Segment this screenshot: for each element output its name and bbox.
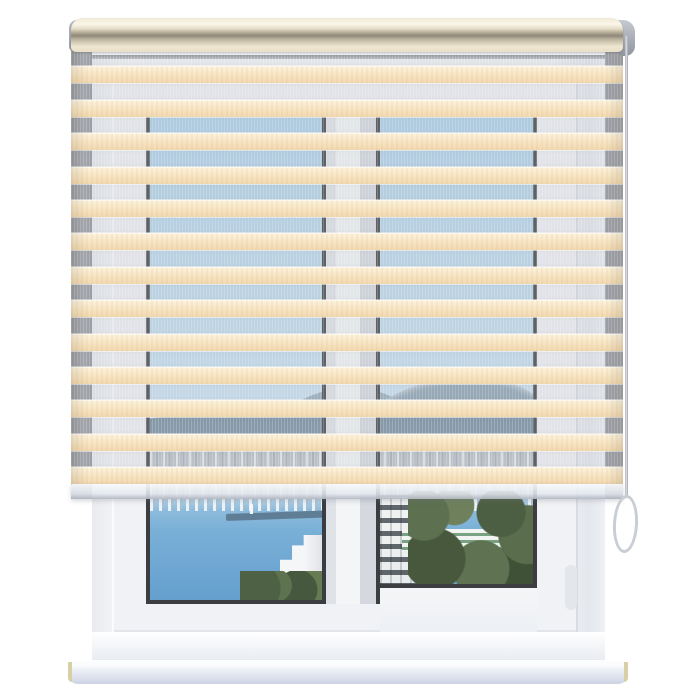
sheer-stripe <box>71 117 623 133</box>
product-image-roller-blind-window <box>0 0 700 700</box>
sheer-stripe <box>71 184 623 200</box>
right-pane-bottom-frame <box>380 584 537 632</box>
fabric-stripe <box>71 233 623 250</box>
sheer-stripe <box>71 351 623 367</box>
sheer-stripe <box>71 451 623 467</box>
fabric-stripe <box>71 133 623 150</box>
fabric-stripe <box>71 367 623 384</box>
lighthouse <box>250 504 253 514</box>
window-sill <box>68 660 628 684</box>
sheer-stripe <box>71 50 623 66</box>
sheer-stripe <box>71 83 623 99</box>
blind-bottom-bar[interactable] <box>71 484 623 499</box>
sheer-stripe <box>71 317 623 333</box>
fabric-stripe <box>71 334 623 351</box>
fabric-stripe <box>71 100 623 117</box>
sheer-stripe <box>71 284 623 300</box>
trees-right-pane <box>408 491 537 588</box>
sheer-stripe <box>71 217 623 233</box>
sheer-stripe <box>71 150 623 166</box>
fabric-stripe <box>71 167 623 184</box>
fabric-stripe <box>71 300 623 317</box>
fabric-stripe <box>71 467 623 484</box>
sill-end-cap-right <box>624 662 628 682</box>
trees-left-pane <box>240 571 328 600</box>
niche-bottom-slope <box>92 632 605 663</box>
control-chain[interactable] <box>625 36 628 498</box>
fabric-stripe <box>71 434 623 451</box>
blind-stripe-fabric[interactable] <box>71 50 623 485</box>
frame-profile-detail <box>565 565 577 610</box>
sheer-stripe <box>71 250 623 266</box>
control-chain-loop[interactable] <box>611 494 639 553</box>
sill-end-cap-left <box>68 662 72 682</box>
fabric-stripe <box>71 267 623 284</box>
fabric-stripe <box>71 200 623 217</box>
fabric-stripe <box>71 400 623 417</box>
blind-cassette <box>71 18 623 52</box>
sheer-stripe <box>71 417 623 433</box>
fabric-stripe <box>71 66 623 83</box>
sheer-stripe <box>71 384 623 400</box>
